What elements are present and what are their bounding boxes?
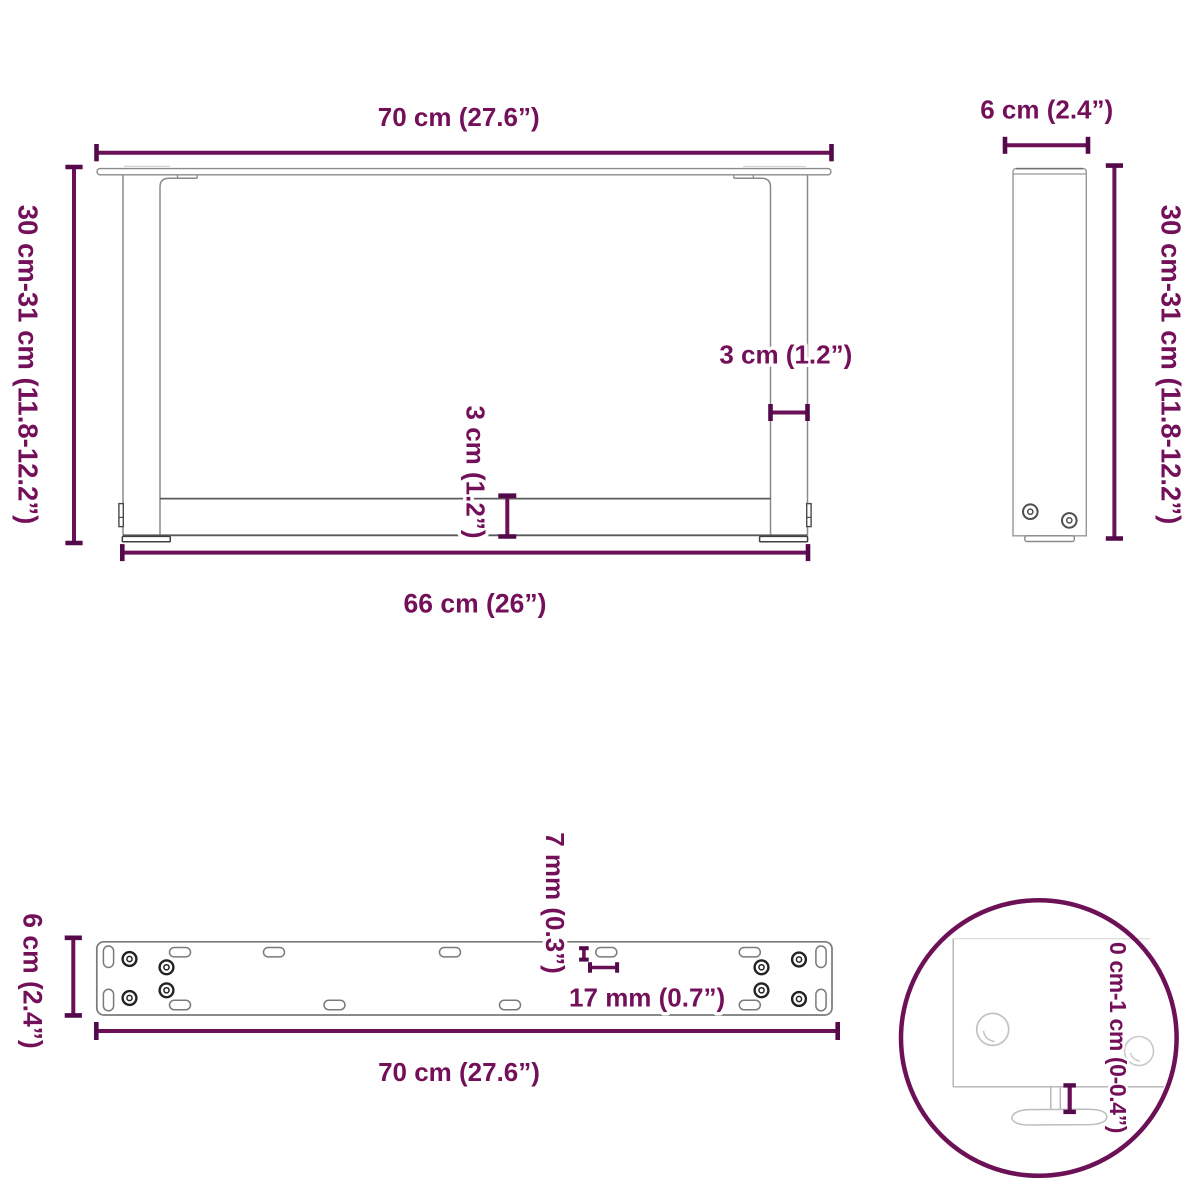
svg-text:0 cm-1 cm (0-0.4”): 0 cm-1 cm (0-0.4”) [1105,942,1131,1133]
svg-text:30 cm-31 cm (11.8-12.2”): 30 cm-31 cm (11.8-12.2”) [13,205,44,525]
svg-text:3 cm (1.2”): 3 cm (1.2”) [461,406,491,539]
svg-text:3 cm (1.2”): 3 cm (1.2”) [719,340,852,370]
svg-text:6 cm (2.4”): 6 cm (2.4”) [980,94,1113,124]
svg-text:70 cm (27.6”): 70 cm (27.6”) [378,1057,540,1087]
svg-text:6 cm (2.4”): 6 cm (2.4”) [18,913,48,1049]
svg-text:7 mm (0.3”): 7 mm (0.3”) [540,832,570,974]
svg-text:70 cm (27.6”): 70 cm (27.6”) [378,102,540,132]
svg-text:30 cm-31 cm (11.8-12.2”): 30 cm-31 cm (11.8-12.2”) [1156,205,1187,525]
svg-text:66 cm (26”): 66 cm (26”) [404,589,547,619]
svg-text:17 mm (0.7”): 17 mm (0.7”) [569,982,725,1012]
